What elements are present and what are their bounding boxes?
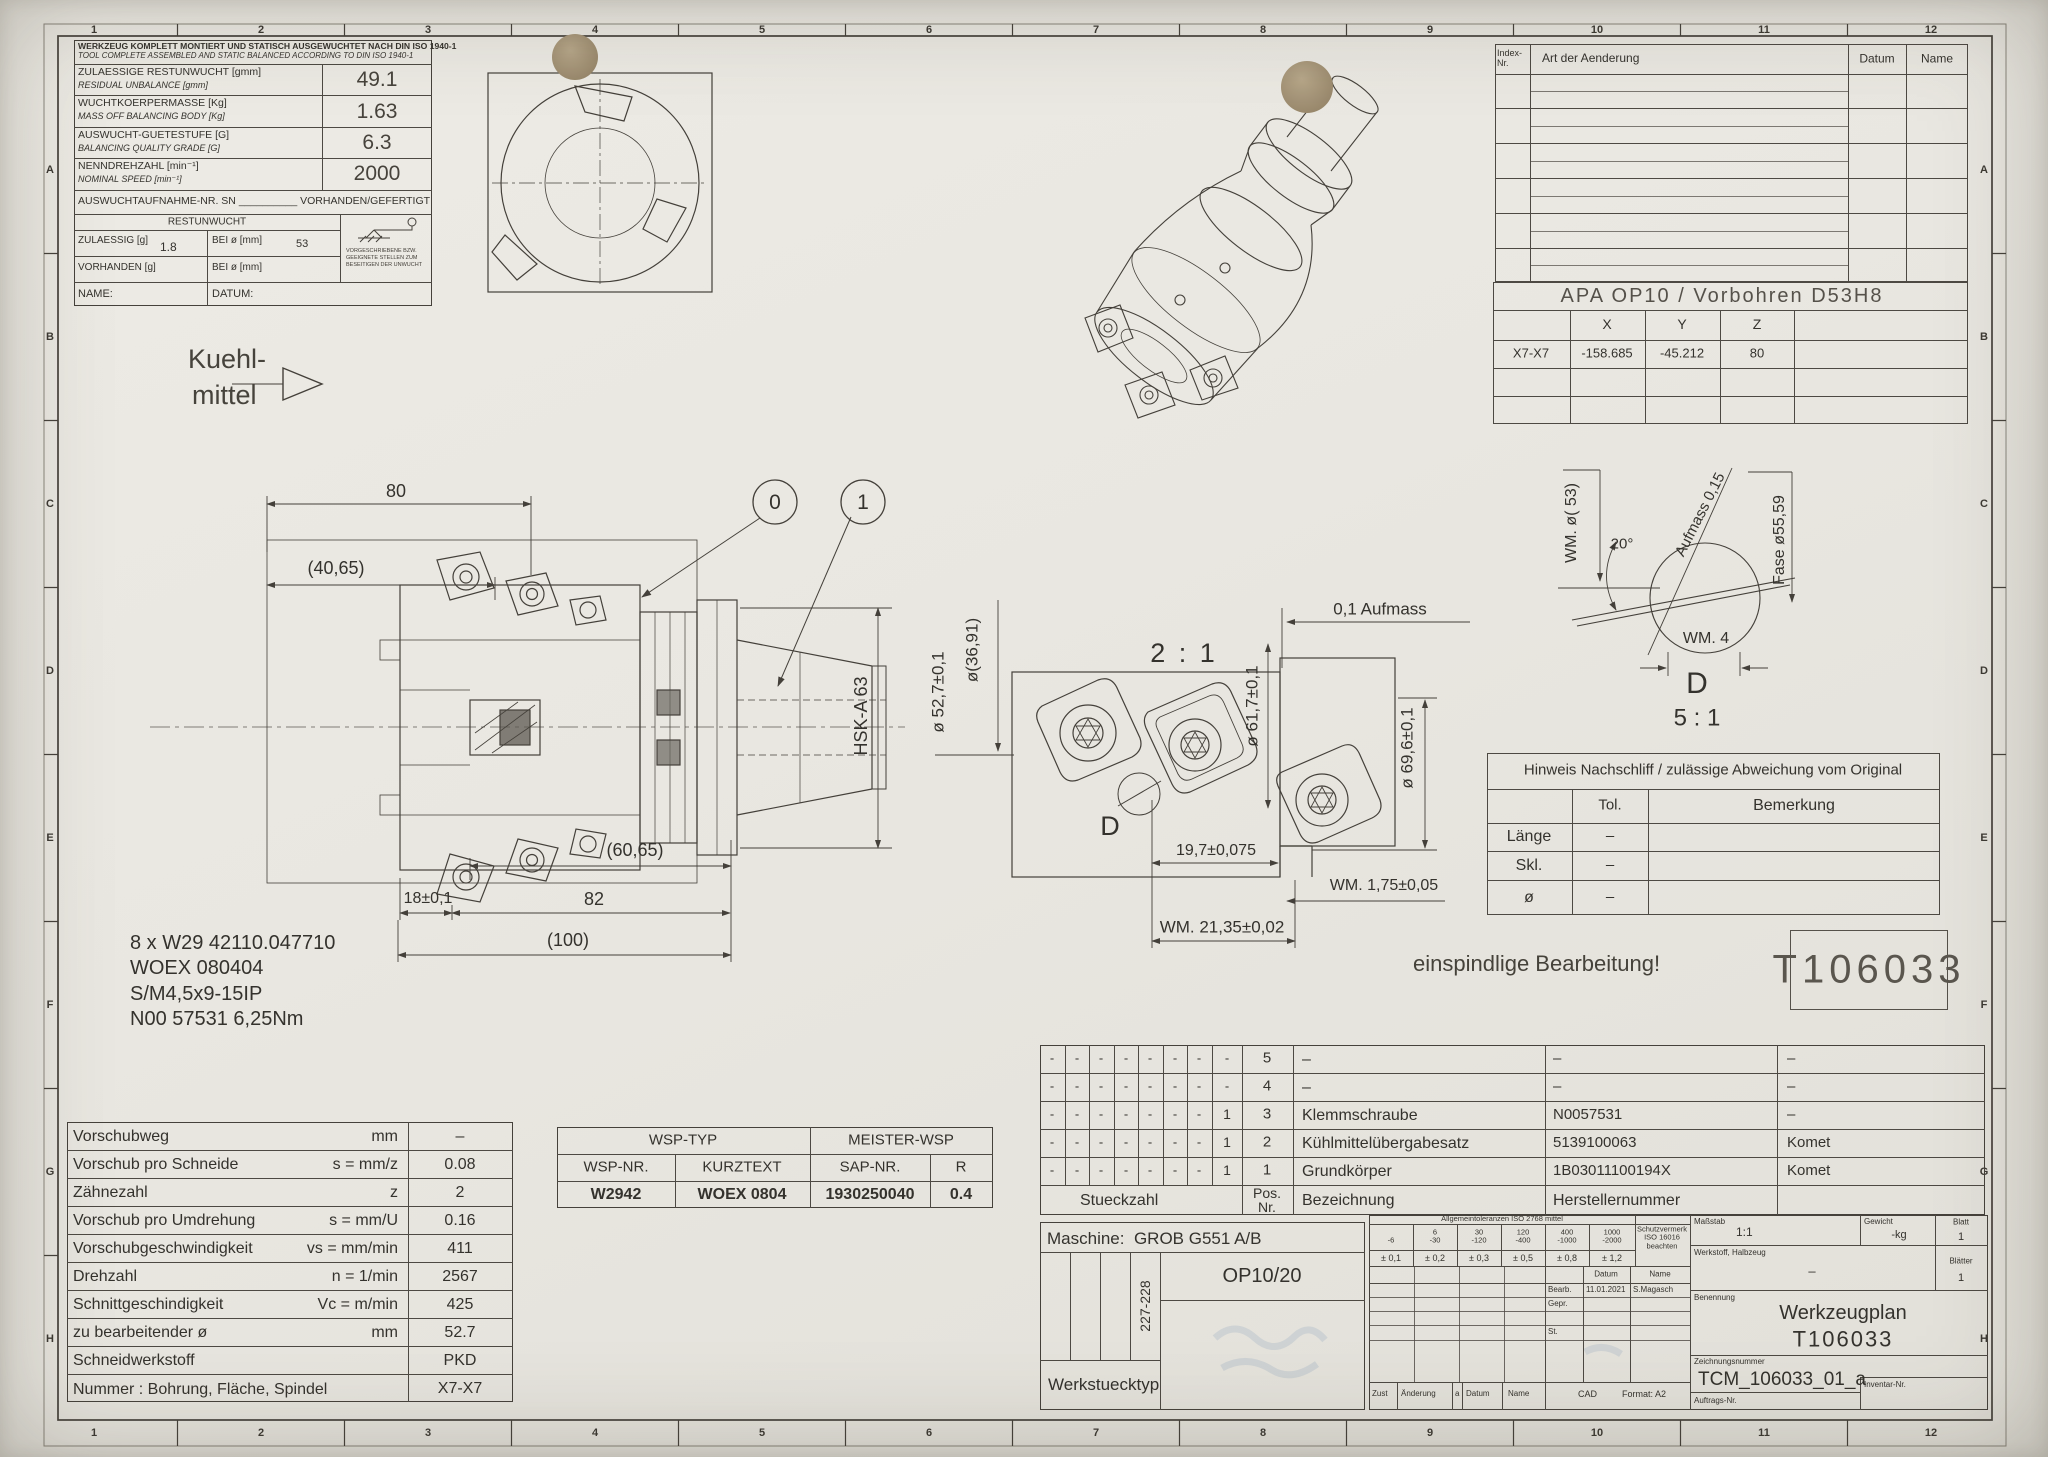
cutting-row-value: – bbox=[456, 1128, 465, 1146]
zone-letter: H bbox=[46, 1333, 54, 1345]
divider bbox=[67, 1234, 513, 1235]
parts-count: - bbox=[1099, 1136, 1103, 1151]
parts-count: - bbox=[1148, 1108, 1152, 1123]
revision-col-name: Name bbox=[1921, 52, 1953, 65]
cutting-row-label: Zähnezahl bbox=[73, 1184, 148, 1202]
divider bbox=[1493, 368, 1968, 369]
zeichnungsnummer-label: Zeichnungsnummer bbox=[1694, 1358, 1765, 1367]
divider bbox=[1630, 1266, 1631, 1382]
werkstoff-value: – bbox=[1808, 1265, 1815, 1280]
divider bbox=[1369, 1325, 1690, 1326]
divider bbox=[1242, 1045, 1243, 1215]
rest-zul-label: ZULAESSIG [g] bbox=[78, 235, 148, 246]
machine-werkstuecktyp: Werkstuecktyp bbox=[1048, 1375, 1159, 1394]
divider bbox=[1212, 1045, 1213, 1185]
divider bbox=[74, 127, 432, 128]
divider bbox=[1583, 1266, 1584, 1382]
tol-range: 6-30 bbox=[1430, 1229, 1441, 1246]
detail-d-view bbox=[1558, 468, 1795, 676]
rest-bei1-value: 53 bbox=[296, 238, 308, 250]
parts-count: - bbox=[1075, 1108, 1079, 1123]
divider bbox=[340, 214, 341, 282]
wsp-value-2: WOEX 0804 bbox=[698, 1186, 787, 1204]
cad-label: CAD bbox=[1578, 1389, 1597, 1399]
schutzvermerk: SchutzvermerkISO 16016beachten bbox=[1637, 1225, 1687, 1250]
auftrag-label: Auftrags-Nr. bbox=[1694, 1397, 1737, 1406]
divider bbox=[1635, 1215, 1636, 1266]
divider bbox=[1495, 213, 1968, 214]
divider bbox=[1545, 1382, 1546, 1410]
divider bbox=[557, 1181, 993, 1182]
werkstoff-label: Werkstoff, Halbzeug bbox=[1694, 1249, 1766, 1258]
zone-letter: D bbox=[46, 665, 54, 677]
zone-letter: F bbox=[47, 999, 54, 1011]
stamp-gepr-label: Gepr. bbox=[1548, 1300, 1568, 1309]
divider bbox=[74, 158, 432, 159]
divider bbox=[1495, 74, 1968, 75]
blaetter-label: Blätter bbox=[1949, 1258, 1972, 1267]
divider bbox=[1293, 1045, 1294, 1215]
cutting-row-value: 2 bbox=[456, 1184, 465, 1202]
parts-count: - bbox=[1173, 1052, 1177, 1067]
divider bbox=[1040, 1073, 1985, 1074]
zone-number: 8 bbox=[1260, 24, 1266, 36]
balance-row-value: 49.1 bbox=[357, 68, 398, 92]
tool-note-line: 8 x W29 42110.047710 bbox=[130, 932, 335, 954]
parts-count: - bbox=[1148, 1052, 1152, 1067]
divider bbox=[1530, 126, 1848, 127]
parts-count: - bbox=[1075, 1080, 1079, 1095]
revision-col-art: Art der Aenderung bbox=[1542, 52, 1639, 65]
divider bbox=[322, 64, 323, 190]
zone-number: 7 bbox=[1093, 1427, 1099, 1439]
divider bbox=[67, 1206, 513, 1207]
divider bbox=[1187, 1045, 1188, 1185]
dim-60-65: (60,65) bbox=[606, 840, 663, 860]
parts-name: Grundkörper bbox=[1302, 1163, 1392, 1181]
apa-row-label: X7-X7 bbox=[1513, 347, 1549, 362]
divider bbox=[1130, 1252, 1131, 1360]
wsp-col-2: KURZTEXT bbox=[702, 1160, 781, 1177]
divider bbox=[1414, 1266, 1415, 1382]
parts-mfr: – bbox=[1553, 1051, 1561, 1068]
cutting-row-label: Drehzahl bbox=[73, 1268, 137, 1286]
detailD-scale: 5 : 1 bbox=[1674, 706, 1721, 733]
divider bbox=[1501, 1224, 1502, 1266]
zone-number: 4 bbox=[592, 24, 598, 36]
divider bbox=[67, 1150, 513, 1151]
divider bbox=[1690, 1290, 1988, 1291]
cutting-row-value: 411 bbox=[447, 1240, 473, 1258]
zone-letter: G bbox=[46, 1166, 55, 1178]
tol-value: ± 0,8 bbox=[1557, 1253, 1577, 1263]
zone-letter: A bbox=[1980, 164, 1988, 176]
parts-count: - bbox=[1173, 1108, 1177, 1123]
stamp-st-label: St. bbox=[1548, 1328, 1558, 1337]
apa-col-x: X bbox=[1602, 317, 1611, 333]
apa-col-z: Z bbox=[1753, 317, 1762, 333]
dim-19-7: 19,7±0,075 bbox=[1176, 842, 1256, 860]
divider bbox=[1160, 1300, 1365, 1301]
divider bbox=[1163, 1045, 1164, 1185]
divider bbox=[1040, 1252, 1365, 1253]
drawing-sheet: 1 2 3 4 5 6 7 8 9 10 11 12 1 2 3 4 5 6 7… bbox=[0, 0, 2048, 1457]
cutting-row-value: 2567 bbox=[442, 1268, 478, 1286]
tol-value: ± 0,5 bbox=[1513, 1253, 1533, 1263]
divider bbox=[1690, 1392, 1860, 1393]
divider bbox=[1935, 1215, 1936, 1290]
parts-pos: 2 bbox=[1263, 1135, 1271, 1152]
zone-number: 2 bbox=[258, 1427, 264, 1439]
parts-count: - bbox=[1148, 1164, 1152, 1179]
cutting-row-label: Schnittgeschindigkeit bbox=[73, 1296, 223, 1314]
dim-36-91: ø(36,91) bbox=[962, 618, 981, 682]
divider bbox=[74, 214, 432, 215]
single-spindle-note: einspindlige Bearbeitung! bbox=[1413, 952, 1660, 977]
zone-letter: D bbox=[1980, 665, 1988, 677]
parts-count: - bbox=[1173, 1080, 1177, 1095]
dim-40-65: (40,65) bbox=[307, 558, 364, 578]
divider bbox=[1777, 1045, 1778, 1215]
divider bbox=[1065, 1045, 1066, 1185]
zeichnungsnummer-value: TCM_106033_01_a bbox=[1698, 1369, 1866, 1390]
divider bbox=[67, 1262, 513, 1263]
rest-zul-value: 1.8 bbox=[160, 241, 177, 254]
parts-count: - bbox=[1197, 1108, 1201, 1123]
zone-number: 1 bbox=[91, 24, 97, 36]
cutting-row-value: X7-X7 bbox=[438, 1380, 482, 1398]
parts-count: - bbox=[1075, 1052, 1079, 1067]
parts-count: - bbox=[1124, 1136, 1128, 1151]
zone-number: 10 bbox=[1591, 24, 1603, 36]
rest-bei1-label: BEI ø [mm] bbox=[212, 235, 262, 246]
revision-col-index: Index-Nr. bbox=[1497, 48, 1522, 68]
divider bbox=[1487, 851, 1940, 852]
divider bbox=[1530, 231, 1848, 232]
parts-count: - bbox=[1050, 1052, 1054, 1067]
strip-a: a bbox=[1455, 1390, 1459, 1399]
parts-count: - bbox=[1124, 1052, 1128, 1067]
dim-52-7: ø 52,7±0,1 bbox=[928, 651, 947, 732]
parts-count: - bbox=[1099, 1108, 1103, 1123]
zone-number: 10 bbox=[1591, 1427, 1603, 1439]
rest-bei2-label: BEI ø [mm] bbox=[212, 262, 262, 273]
divider bbox=[207, 230, 208, 306]
tol-value: ± 0,1 bbox=[1381, 1253, 1401, 1263]
parts-count: - bbox=[1075, 1164, 1079, 1179]
tol-range: 30-120 bbox=[1471, 1229, 1486, 1246]
divider bbox=[1138, 1045, 1139, 1185]
parts-name: – bbox=[1302, 1051, 1311, 1069]
wsp-value-4: 0.4 bbox=[950, 1186, 972, 1204]
balance-title-en: TOOL COMPLETE ASSEMBLED AND STATIC BALAN… bbox=[78, 52, 413, 61]
balance-row-value: 1.63 bbox=[357, 100, 398, 124]
tol-range: 120-400 bbox=[1515, 1229, 1530, 1246]
divider bbox=[1040, 1360, 1160, 1361]
parts-name: Klemmschraube bbox=[1302, 1107, 1418, 1125]
coolant-label-line1: Kuehl- bbox=[188, 344, 266, 374]
divider bbox=[1848, 44, 1849, 282]
divider bbox=[1860, 1215, 1861, 1245]
nachschliff-col-tol: Tol. bbox=[1598, 798, 1621, 815]
detail21-d-label: D bbox=[1100, 811, 1120, 841]
wsp-header-1: WSP-TYP bbox=[649, 1133, 717, 1150]
parts-mfr: 5139100063 bbox=[1553, 1135, 1636, 1152]
parts-count: 1 bbox=[1223, 1135, 1231, 1151]
punch-hole bbox=[1281, 61, 1333, 113]
nachschliff-row-label: Skl. bbox=[1516, 857, 1543, 875]
benennung-value-2: T106033 bbox=[1793, 1328, 1894, 1353]
wsp-col-3: SAP-NR. bbox=[840, 1160, 901, 1177]
divider bbox=[1530, 91, 1848, 92]
divider bbox=[1570, 310, 1571, 424]
zone-number: 12 bbox=[1925, 24, 1937, 36]
divider bbox=[1794, 310, 1795, 424]
divider bbox=[1369, 1297, 1690, 1298]
zone-number: 11 bbox=[1758, 1427, 1770, 1439]
machine-op: OP10/20 bbox=[1223, 1265, 1302, 1287]
divider bbox=[74, 64, 432, 65]
divider bbox=[1457, 1224, 1458, 1266]
balance-row-label: WUCHTKOERPERMASSE [Kg] bbox=[78, 98, 227, 110]
divider bbox=[1530, 265, 1848, 266]
parts-header-hersteller: Herstellernummer bbox=[1553, 1192, 1680, 1210]
dim-20deg: 20° bbox=[1611, 537, 1634, 554]
parts-header-stueckzahl: Stueckzahl bbox=[1080, 1192, 1158, 1210]
divider bbox=[74, 190, 432, 191]
cutting-row-formula: n = 1/min bbox=[205, 1268, 398, 1286]
parts-supplier: – bbox=[1787, 1107, 1795, 1124]
divider bbox=[675, 1154, 676, 1208]
balloon-0-label: 0 bbox=[769, 491, 781, 515]
divider bbox=[1690, 1355, 1988, 1356]
massstab-value: 1:1 bbox=[1736, 1226, 1753, 1239]
divider bbox=[1369, 1382, 1690, 1383]
dim-100: (100) bbox=[547, 930, 589, 950]
detail21-scale: 2 : 1 bbox=[1150, 638, 1218, 668]
parts-pos: 4 bbox=[1263, 1079, 1271, 1096]
balance-row-value: 2000 bbox=[354, 162, 401, 186]
divider bbox=[1070, 1252, 1071, 1360]
parts-count: - bbox=[1124, 1108, 1128, 1123]
stamp-bearb-name: S.Magasch bbox=[1633, 1286, 1673, 1295]
dim-69-6: ø 69,6±0,1 bbox=[1397, 707, 1416, 788]
parts-count: - bbox=[1225, 1052, 1229, 1067]
parts-supplier: – bbox=[1787, 1051, 1795, 1068]
machine-label: Maschine: GROB G551 A/B bbox=[1047, 1229, 1262, 1248]
parts-mfr: N0057531 bbox=[1553, 1107, 1622, 1124]
divider bbox=[1589, 1224, 1590, 1266]
parts-count: - bbox=[1050, 1108, 1054, 1123]
zone-number: 5 bbox=[759, 1427, 765, 1439]
divider bbox=[1040, 1129, 1985, 1130]
parts-supplier: Komet bbox=[1787, 1135, 1830, 1152]
divider bbox=[1040, 1101, 1985, 1102]
divider bbox=[1648, 789, 1649, 915]
tool-note-line: WOEX 080404 bbox=[130, 957, 263, 979]
divider bbox=[1369, 1283, 1690, 1284]
divider bbox=[1495, 143, 1968, 144]
divider bbox=[1493, 310, 1968, 311]
zone-letter: E bbox=[46, 832, 53, 844]
divider bbox=[1369, 1266, 1690, 1267]
balance-sn-line: AUSWUCHTAUFNAHME-NR. SN __________ VORHA… bbox=[78, 196, 430, 208]
parts-supplier: Komet bbox=[1787, 1163, 1830, 1180]
parts-count: - bbox=[1197, 1052, 1201, 1067]
stamp-bearb-label: Bearb. bbox=[1548, 1286, 1572, 1295]
divider bbox=[1495, 108, 1968, 109]
zone-number: 3 bbox=[425, 1427, 431, 1439]
zone-letter: A bbox=[46, 164, 54, 176]
zone-number: 9 bbox=[1427, 24, 1433, 36]
strip-datum: Datum bbox=[1466, 1390, 1490, 1399]
parts-count: - bbox=[1148, 1136, 1152, 1151]
divider bbox=[67, 1290, 513, 1291]
tol-range: 400-1000 bbox=[1557, 1229, 1576, 1246]
cutting-row-value: 0.08 bbox=[444, 1156, 475, 1174]
benennung-value-1: Werkzeugplan bbox=[1779, 1302, 1906, 1324]
cutting-row-label: Nummer : Bohrung, Fläche, Spindel bbox=[73, 1381, 327, 1399]
zone-letter: B bbox=[46, 331, 54, 343]
tool-number: T106033 bbox=[1773, 948, 1966, 993]
balance-row-value: 6.3 bbox=[362, 131, 391, 155]
zone-number: 6 bbox=[926, 24, 932, 36]
parts-supplier: – bbox=[1787, 1079, 1795, 1096]
parts-count: - bbox=[1099, 1164, 1103, 1179]
apa-y-value: -45.212 bbox=[1660, 347, 1704, 362]
cutting-row-label: Vorschubweg bbox=[73, 1128, 169, 1146]
balance-row-label: AUSWUCHT-GUETESTUFE [G] bbox=[78, 130, 229, 142]
parts-count: - bbox=[1173, 1164, 1177, 1179]
divider bbox=[1720, 310, 1721, 424]
divider bbox=[557, 1154, 993, 1155]
divider bbox=[1495, 178, 1968, 179]
divider bbox=[1413, 1224, 1414, 1266]
zone-number: 6 bbox=[926, 1427, 932, 1439]
gewicht-value: -kg bbox=[1891, 1229, 1906, 1241]
dim-fase: Fase ø55,59 bbox=[1771, 495, 1789, 585]
zone-number: 8 bbox=[1260, 1427, 1266, 1439]
parts-count: - bbox=[1197, 1136, 1201, 1151]
cutting-row-label: zu bearbeitender ø bbox=[73, 1324, 207, 1342]
divider bbox=[67, 1178, 513, 1179]
strip-zust: Zust bbox=[1372, 1390, 1388, 1399]
parts-count: - bbox=[1225, 1080, 1229, 1095]
divider bbox=[1545, 1045, 1546, 1215]
parts-header-bezeichnung: Bezeichnung bbox=[1302, 1192, 1395, 1210]
dim-hsk: HSK-A 63 bbox=[851, 676, 871, 755]
parts-count: - bbox=[1075, 1136, 1079, 1151]
divider bbox=[1462, 1382, 1463, 1410]
wsp-col-4: R bbox=[956, 1160, 967, 1177]
cutting-row-formula: s = mm/z bbox=[205, 1156, 398, 1174]
balance-row-label: ZULAESSIGE RESTUNWUCHT [gmm] bbox=[78, 67, 261, 79]
tol-value: ± 0,3 bbox=[1469, 1253, 1489, 1263]
nachschliff-title: Hinweis Nachschliff / zulässige Abweichu… bbox=[1524, 763, 1902, 780]
dim-18: 18±0,1 bbox=[404, 890, 453, 908]
zone-number: 2 bbox=[258, 24, 264, 36]
blatt-value: 1 bbox=[1958, 1231, 1964, 1243]
parts-pos: 5 bbox=[1263, 1051, 1271, 1068]
zone-letter: C bbox=[1980, 498, 1988, 510]
divider bbox=[1040, 1185, 1985, 1186]
tol-range: -6 bbox=[1388, 1229, 1395, 1246]
nachschliff-row-label: Länge bbox=[1507, 828, 1552, 846]
divider bbox=[1493, 340, 1968, 341]
stamp-name-header: Name bbox=[1649, 1271, 1670, 1280]
nachschliff-row-tol: – bbox=[1606, 890, 1614, 907]
unbalance-symbol-note: VORGESCHRIEBENE BZW. GEEIGNETE STELLEN Z… bbox=[346, 248, 428, 269]
balance-row-label: NENNDREHZAHL [min⁻¹] bbox=[78, 161, 199, 173]
zone-number: 12 bbox=[1925, 1427, 1937, 1439]
zone-number: 1 bbox=[91, 1427, 97, 1439]
divider bbox=[67, 1346, 513, 1347]
blaetter-value: 1 bbox=[1958, 1272, 1964, 1284]
divider bbox=[1397, 1382, 1398, 1410]
zone-letter: B bbox=[1980, 331, 1988, 343]
rest-title: RESTUNWUCHT bbox=[168, 216, 246, 227]
apa-col-y: Y bbox=[1677, 317, 1686, 333]
punch-hole bbox=[552, 34, 598, 80]
cutting-row-value: PKD bbox=[444, 1352, 477, 1370]
divider bbox=[1452, 1382, 1453, 1410]
zone-number: 5 bbox=[759, 24, 765, 36]
tol-value: ± 1,2 bbox=[1602, 1253, 1622, 1263]
detailD-label: D bbox=[1686, 667, 1708, 701]
cutting-row-formula: z bbox=[205, 1184, 398, 1202]
blatt-label: Blatt bbox=[1953, 1219, 1969, 1228]
dim-wm4: WM. 4 bbox=[1683, 630, 1729, 648]
nachschliff-row-tol: – bbox=[1606, 858, 1614, 875]
divider bbox=[1530, 196, 1848, 197]
front-view bbox=[488, 73, 712, 292]
cutting-row-formula: Vc = m/min bbox=[205, 1296, 398, 1314]
parts-mfr: – bbox=[1553, 1079, 1561, 1096]
parts-pos: 1 bbox=[1263, 1163, 1271, 1180]
cutting-row-formula: mm bbox=[205, 1324, 398, 1342]
parts-count: 1 bbox=[1223, 1163, 1231, 1179]
parts-mfr: 1B03011100194X bbox=[1553, 1163, 1671, 1180]
divider bbox=[1645, 310, 1646, 424]
format-label: Format: A2 bbox=[1622, 1389, 1666, 1399]
dim-aufmass-01: 0,1 Aufmass bbox=[1333, 599, 1427, 618]
stamp-bearb-datum: 11.01.2021 bbox=[1586, 1286, 1625, 1295]
divider bbox=[1160, 1252, 1161, 1410]
parts-pos: 3 bbox=[1263, 1107, 1271, 1124]
main-section-view bbox=[150, 480, 905, 962]
zone-number: 4 bbox=[592, 1427, 598, 1439]
revision-col-datum: Datum bbox=[1859, 52, 1894, 65]
parts-name: Kühlmittelübergabesatz bbox=[1302, 1135, 1469, 1153]
divider bbox=[1493, 396, 1968, 397]
nachschliff-row-label: ø bbox=[1524, 889, 1534, 907]
balloon-1-label: 1 bbox=[857, 491, 869, 515]
divider bbox=[1690, 1245, 1988, 1246]
zone-letter: F bbox=[1981, 999, 1988, 1011]
parts-border bbox=[1040, 1045, 1985, 1215]
zone-number: 11 bbox=[1758, 24, 1770, 36]
zone-letter: C bbox=[46, 498, 54, 510]
divider bbox=[1530, 44, 1531, 282]
divider bbox=[1100, 1252, 1101, 1360]
parts-count: - bbox=[1099, 1080, 1103, 1095]
divider bbox=[1369, 1311, 1690, 1312]
gewicht-label: Gewicht bbox=[1864, 1218, 1893, 1227]
dim-21-35: WM. 21,35±0,02 bbox=[1160, 917, 1285, 936]
cutting-row-label: Schneidwerkstoff bbox=[73, 1352, 195, 1370]
apa-title: APA OP10 / Vorbohren D53H8 bbox=[1561, 285, 1884, 307]
balance-row-label-en: RESIDUAL UNBALANCE [gmm] bbox=[78, 80, 208, 90]
